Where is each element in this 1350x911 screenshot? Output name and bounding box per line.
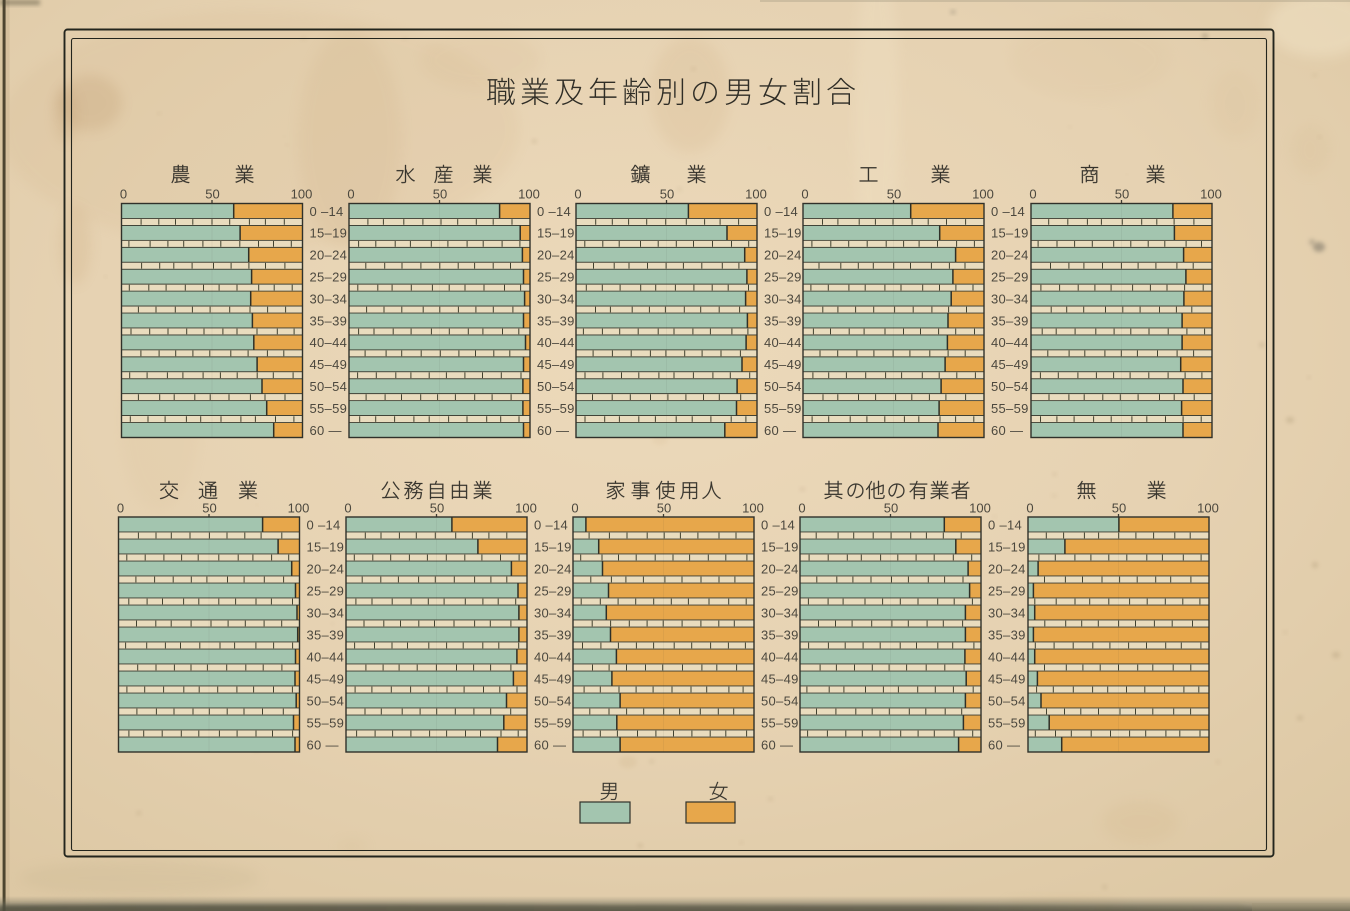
- svg-text:0 –14: 0 –14: [537, 204, 571, 219]
- svg-text:15–19: 15–19: [537, 226, 575, 241]
- svg-text:50–54: 50–54: [988, 693, 1026, 708]
- svg-text:0 –14: 0 –14: [764, 204, 798, 219]
- svg-text:55–59: 55–59: [991, 401, 1029, 416]
- svg-text:50: 50: [433, 187, 447, 202]
- svg-text:35–39: 35–39: [988, 627, 1026, 642]
- svg-text:0: 0: [1029, 187, 1036, 202]
- svg-text:100: 100: [291, 187, 313, 202]
- svg-text:15–19: 15–19: [764, 226, 802, 241]
- svg-text:50: 50: [884, 501, 898, 516]
- svg-text:25–29: 25–29: [537, 270, 575, 285]
- svg-text:100: 100: [745, 187, 767, 202]
- svg-text:35–39: 35–39: [307, 627, 345, 642]
- svg-text:60 —: 60 —: [991, 423, 1023, 438]
- svg-text:100: 100: [515, 501, 537, 516]
- svg-text:45–49: 45–49: [307, 671, 345, 686]
- svg-text:20–24: 20–24: [988, 561, 1026, 576]
- svg-text:50: 50: [1115, 187, 1129, 202]
- svg-text:30–34: 30–34: [534, 605, 572, 620]
- svg-text:50–54: 50–54: [991, 379, 1029, 394]
- svg-text:15–19: 15–19: [988, 539, 1026, 554]
- svg-text:0: 0: [574, 187, 581, 202]
- svg-text:55–59: 55–59: [764, 401, 802, 416]
- svg-text:35–39: 35–39: [764, 313, 802, 328]
- svg-text:0 –14: 0 –14: [534, 517, 568, 532]
- svg-text:40–44: 40–44: [764, 335, 802, 350]
- svg-text:25–29: 25–29: [534, 583, 572, 598]
- svg-text:40–44: 40–44: [991, 335, 1029, 350]
- svg-text:25–29: 25–29: [310, 270, 348, 285]
- svg-text:55–59: 55–59: [537, 401, 575, 416]
- svg-text:25–29: 25–29: [307, 583, 345, 598]
- svg-text:0: 0: [1026, 501, 1033, 516]
- svg-text:60 —: 60 —: [761, 737, 793, 752]
- svg-text:30–34: 30–34: [991, 291, 1029, 306]
- svg-text:50: 50: [430, 501, 444, 516]
- svg-text:15–19: 15–19: [534, 539, 572, 554]
- svg-text:40–44: 40–44: [310, 335, 348, 350]
- svg-text:0: 0: [801, 187, 808, 202]
- svg-text:50: 50: [202, 501, 216, 516]
- svg-text:50: 50: [660, 187, 674, 202]
- svg-text:100: 100: [288, 501, 310, 516]
- svg-text:45–49: 45–49: [761, 671, 799, 686]
- svg-text:50–54: 50–54: [310, 379, 348, 394]
- svg-text:50–54: 50–54: [537, 379, 575, 394]
- svg-text:30–34: 30–34: [310, 291, 348, 306]
- svg-text:0: 0: [798, 501, 805, 516]
- svg-text:60 —: 60 —: [310, 423, 342, 438]
- svg-text:55–59: 55–59: [307, 715, 345, 730]
- svg-text:15–19: 15–19: [761, 539, 799, 554]
- svg-text:0 –14: 0 –14: [991, 204, 1025, 219]
- svg-text:30–34: 30–34: [537, 291, 575, 306]
- svg-text:0 –14: 0 –14: [761, 517, 795, 532]
- svg-text:100: 100: [1197, 501, 1219, 516]
- svg-text:0: 0: [571, 501, 578, 516]
- svg-text:50: 50: [1112, 501, 1126, 516]
- svg-text:50: 50: [887, 187, 901, 202]
- svg-text:45–49: 45–49: [534, 671, 572, 686]
- svg-text:100: 100: [969, 501, 991, 516]
- svg-text:15–19: 15–19: [307, 539, 345, 554]
- svg-text:40–44: 40–44: [988, 649, 1026, 664]
- svg-text:55–59: 55–59: [761, 715, 799, 730]
- svg-text:50–54: 50–54: [534, 693, 572, 708]
- svg-text:55–59: 55–59: [534, 715, 572, 730]
- svg-text:100: 100: [742, 501, 764, 516]
- svg-text:35–39: 35–39: [761, 627, 799, 642]
- svg-text:20–24: 20–24: [310, 248, 348, 263]
- svg-text:45–49: 45–49: [310, 357, 348, 372]
- svg-text:25–29: 25–29: [988, 583, 1026, 598]
- svg-text:35–39: 35–39: [991, 313, 1029, 328]
- svg-text:55–59: 55–59: [310, 401, 348, 416]
- svg-text:100: 100: [972, 187, 994, 202]
- svg-text:100: 100: [1200, 187, 1222, 202]
- svg-text:30–34: 30–34: [761, 605, 799, 620]
- svg-text:45–49: 45–49: [991, 357, 1029, 372]
- svg-text:20–24: 20–24: [991, 248, 1029, 263]
- svg-text:25–29: 25–29: [991, 270, 1029, 285]
- svg-text:25–29: 25–29: [764, 270, 802, 285]
- svg-text:0: 0: [120, 187, 127, 202]
- svg-text:20–24: 20–24: [764, 248, 802, 263]
- svg-text:60 —: 60 —: [988, 737, 1020, 752]
- svg-text:0: 0: [347, 187, 354, 202]
- svg-text:35–39: 35–39: [310, 313, 348, 328]
- svg-text:20–24: 20–24: [307, 561, 345, 576]
- svg-text:50: 50: [657, 501, 671, 516]
- svg-text:0: 0: [117, 501, 124, 516]
- svg-text:0 –14: 0 –14: [988, 517, 1022, 532]
- svg-text:60 —: 60 —: [534, 737, 566, 752]
- svg-text:50–54: 50–54: [307, 693, 345, 708]
- svg-text:45–49: 45–49: [537, 357, 575, 372]
- svg-text:20–24: 20–24: [534, 561, 572, 576]
- svg-text:40–44: 40–44: [761, 649, 799, 664]
- svg-text:45–49: 45–49: [764, 357, 802, 372]
- svg-text:0 –14: 0 –14: [310, 204, 344, 219]
- svg-text:40–44: 40–44: [537, 335, 575, 350]
- svg-text:20–24: 20–24: [761, 561, 799, 576]
- svg-text:30–34: 30–34: [988, 605, 1026, 620]
- svg-text:50: 50: [205, 187, 219, 202]
- svg-text:20–24: 20–24: [537, 248, 575, 263]
- svg-text:60 —: 60 —: [307, 737, 339, 752]
- svg-text:45–49: 45–49: [988, 671, 1026, 686]
- svg-text:25–29: 25–29: [761, 583, 799, 598]
- svg-text:15–19: 15–19: [310, 226, 348, 241]
- svg-text:35–39: 35–39: [537, 313, 575, 328]
- svg-text:100: 100: [518, 187, 540, 202]
- svg-text:0 –14: 0 –14: [307, 517, 341, 532]
- svg-text:55–59: 55–59: [988, 715, 1026, 730]
- svg-text:60 —: 60 —: [537, 423, 569, 438]
- svg-text:40–44: 40–44: [307, 649, 345, 664]
- svg-text:50–54: 50–54: [761, 693, 799, 708]
- svg-text:15–19: 15–19: [991, 226, 1029, 241]
- svg-text:0: 0: [344, 501, 351, 516]
- svg-text:60 —: 60 —: [764, 423, 796, 438]
- svg-text:30–34: 30–34: [307, 605, 345, 620]
- svg-text:50–54: 50–54: [764, 379, 802, 394]
- svg-text:30–34: 30–34: [764, 291, 802, 306]
- svg-text:40–44: 40–44: [534, 649, 572, 664]
- svg-text:35–39: 35–39: [534, 627, 572, 642]
